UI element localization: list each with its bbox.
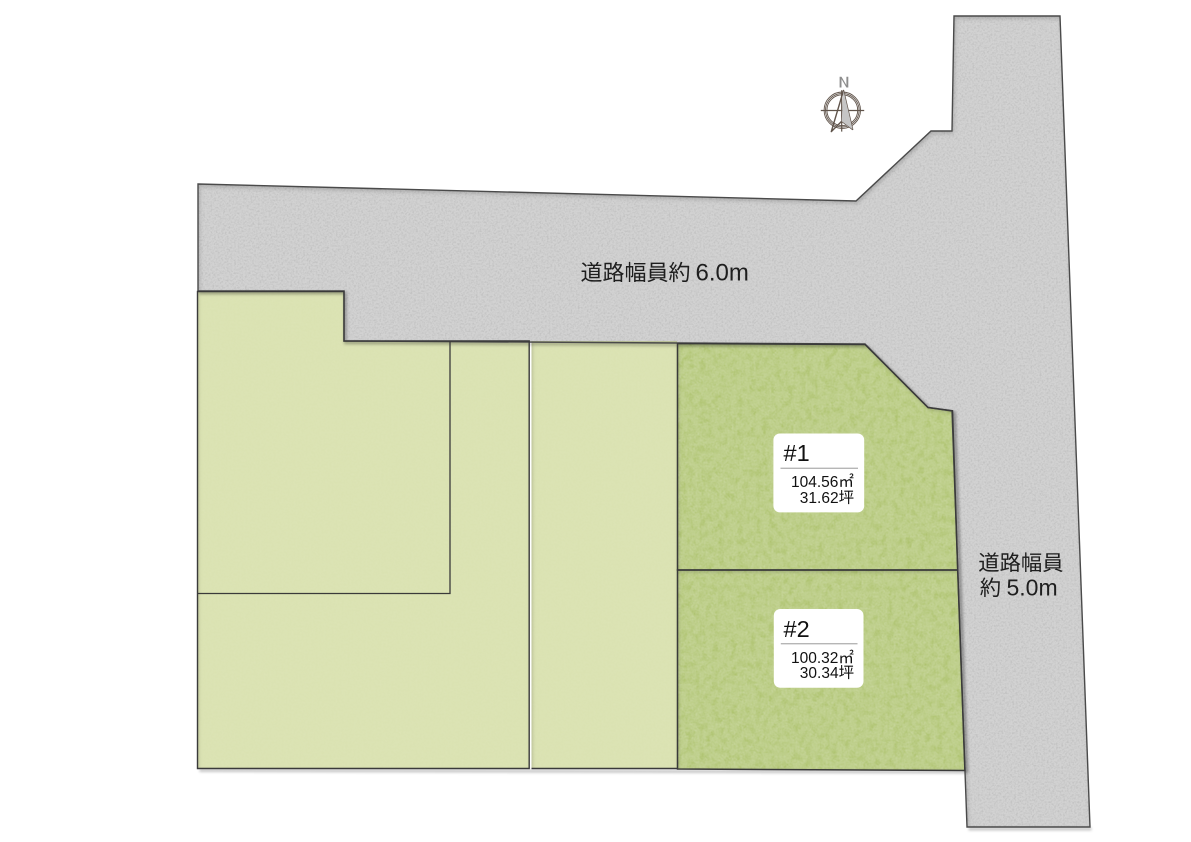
svg-text:30.34: 30.34 [800, 665, 839, 682]
svg-text:#2: #2 [784, 616, 810, 642]
svg-text:5.0m: 5.0m [1007, 574, 1058, 600]
svg-text:31.62: 31.62 [800, 490, 839, 507]
svg-text:#1: #1 [784, 440, 810, 466]
svg-text:104.56: 104.56 [791, 474, 838, 491]
svg-text:6.0m: 6.0m [696, 259, 749, 286]
